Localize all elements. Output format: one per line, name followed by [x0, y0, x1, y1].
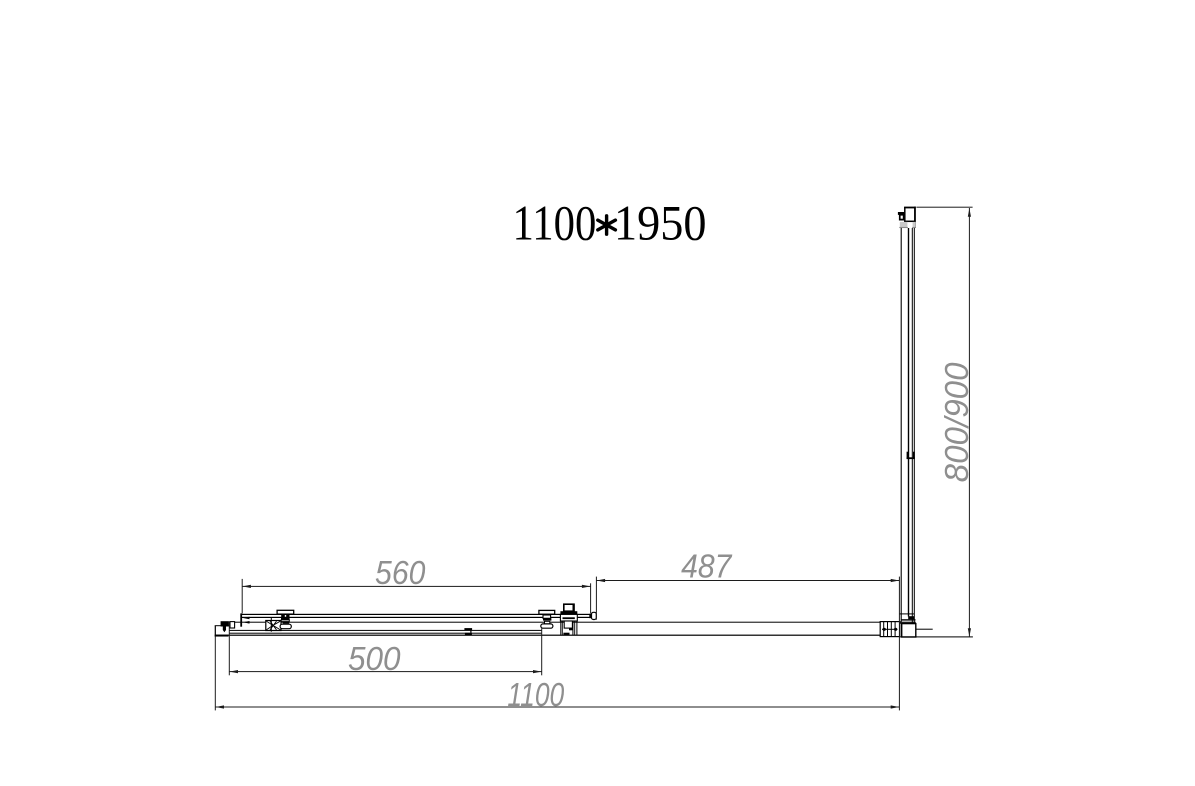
svg-text:1100: 1100 [507, 677, 564, 714]
svg-text:560: 560 [375, 554, 426, 592]
svg-text:487: 487 [681, 547, 733, 585]
svg-text:800/900: 800/900 [939, 362, 976, 482]
svg-text:1950: 1950 [614, 196, 706, 251]
svg-text:500: 500 [348, 640, 401, 677]
svg-text:1100: 1100 [513, 197, 597, 252]
